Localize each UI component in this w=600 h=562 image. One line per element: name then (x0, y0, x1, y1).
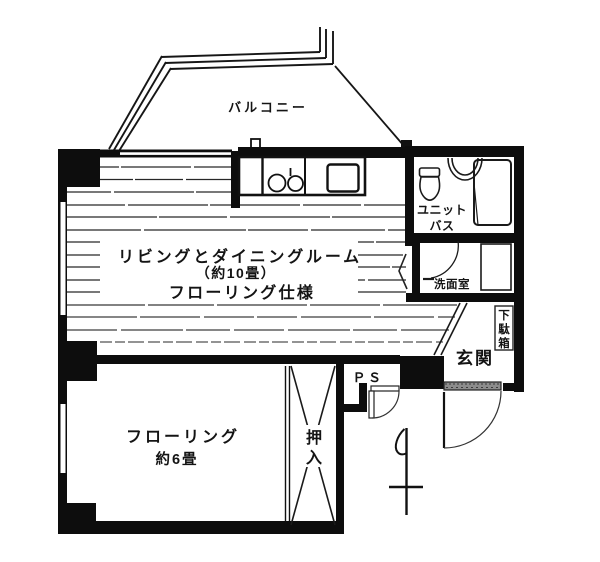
svg-text:駄: 駄 (498, 322, 510, 336)
svg-text:押: 押 (306, 428, 322, 447)
svg-text:玄関: 玄関 (456, 348, 494, 368)
svg-text:ＰＳ: ＰＳ (352, 370, 383, 385)
svg-text:バルコニー: バルコニー (228, 100, 308, 115)
svg-text:ユニット: ユニット (417, 203, 467, 217)
svg-text:下: 下 (498, 309, 510, 322)
svg-text:入: 入 (306, 449, 322, 467)
svg-text:リビングとダイニングルーム: リビングとダイニングルーム (118, 247, 362, 266)
svg-text:（約10畳）: （約10畳） (196, 265, 277, 281)
svg-text:バス: バス (429, 219, 454, 233)
svg-text:洗面室: 洗面室 (434, 277, 470, 291)
svg-text:箱: 箱 (498, 336, 510, 350)
svg-text:フローリング仕様: フローリング仕様 (169, 283, 315, 302)
svg-text:約6畳: 約6畳 (155, 450, 198, 468)
svg-text:フローリング: フローリング (126, 427, 240, 446)
